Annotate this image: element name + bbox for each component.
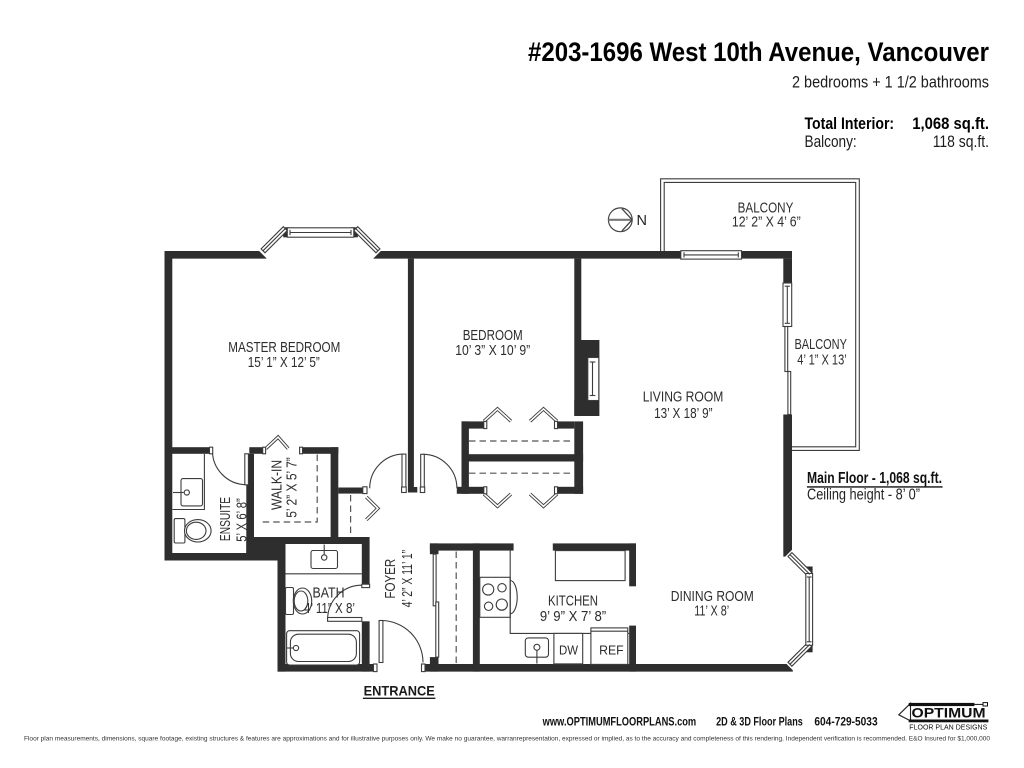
svg-text:5’ X 6’ 8”: 5’ X 6’ 8” xyxy=(235,498,251,542)
svg-text:11’ X 8’: 11’ X 8’ xyxy=(694,604,729,620)
svg-text:2D & 3D Floor Plans: 2D & 3D Floor Plans xyxy=(716,715,803,729)
svg-text:604-729-5033: 604-729-5033 xyxy=(814,715,877,729)
svg-text:1,068 sq.ft.: 1,068 sq.ft. xyxy=(912,114,989,133)
svg-text:2 bedrooms + 1 1/2 bathrooms: 2 bedrooms + 1 1/2 bathrooms xyxy=(792,73,989,92)
svg-text:REF: REF xyxy=(599,642,624,657)
svg-text:9’ 9” X 7’ 8”: 9’ 9” X 7’ 8” xyxy=(540,609,606,625)
svg-text:DW: DW xyxy=(559,642,578,657)
svg-text:12’ 2” X 4’ 6”: 12’ 2” X 4’ 6” xyxy=(732,214,801,230)
svg-text:LIVING ROOM: LIVING ROOM xyxy=(643,389,724,406)
svg-text:www.OPTIMUMFLOORPLANS.com: www.OPTIMUMFLOORPLANS.com xyxy=(542,715,696,729)
svg-text:MASTER BEDROOM: MASTER BEDROOM xyxy=(228,339,340,356)
svg-text:Balcony:: Balcony: xyxy=(805,132,857,151)
svg-text:Ceiling height - 8’ 0”: Ceiling height - 8’ 0” xyxy=(807,487,920,504)
svg-text:BEDROOM: BEDROOM xyxy=(463,327,523,344)
svg-text:ENSUITE: ENSUITE xyxy=(217,497,234,541)
svg-text:Main Floor - 1,068 sq.ft.: Main Floor - 1,068 sq.ft. xyxy=(807,470,942,487)
svg-text:Total Interior:: Total Interior: xyxy=(805,114,895,133)
svg-text:5’ 2” X 5’ 7”: 5’ 2” X 5’ 7” xyxy=(285,457,301,518)
svg-text:13’ X 18’ 9”: 13’ X 18’ 9” xyxy=(654,406,712,422)
svg-text:#203-1696 West 10th Avenue, Va: #203-1696 West 10th Avenue, Vancouver xyxy=(528,37,989,67)
svg-text:KITCHEN: KITCHEN xyxy=(548,593,598,610)
svg-text:Floor plan measurements, dimen: Floor plan measurements, dimensions, squ… xyxy=(24,735,990,742)
svg-text:ENTRANCE: ENTRANCE xyxy=(364,683,435,699)
svg-text:FLOOR PLAN DESIGNS: FLOOR PLAN DESIGNS xyxy=(909,722,987,731)
svg-text:15’ 1” X 12’ 5”: 15’ 1” X 12’ 5” xyxy=(248,355,320,371)
svg-text:4’ 1” X 13’: 4’ 1” X 13’ xyxy=(797,353,846,369)
svg-text:FOYER: FOYER xyxy=(382,559,399,599)
svg-text:WALK-IN: WALK-IN xyxy=(268,460,285,510)
svg-text:BATH: BATH xyxy=(313,585,345,602)
svg-text:OPTIMUM: OPTIMUM xyxy=(912,705,986,721)
svg-text:DINING ROOM: DINING ROOM xyxy=(671,588,754,605)
svg-text:N: N xyxy=(637,213,647,229)
svg-text:118 sq.ft.: 118 sq.ft. xyxy=(933,132,989,151)
svg-text:4’ 2” X 11’ 1”: 4’ 2” X 11’ 1” xyxy=(400,550,416,608)
svg-text:10’ 3” X 10’ 9”: 10’ 3” X 10’ 9” xyxy=(455,343,530,359)
svg-text:4’ 11” X 8’: 4’ 11” X 8’ xyxy=(304,601,355,617)
svg-text:BALCONY: BALCONY xyxy=(795,336,847,353)
